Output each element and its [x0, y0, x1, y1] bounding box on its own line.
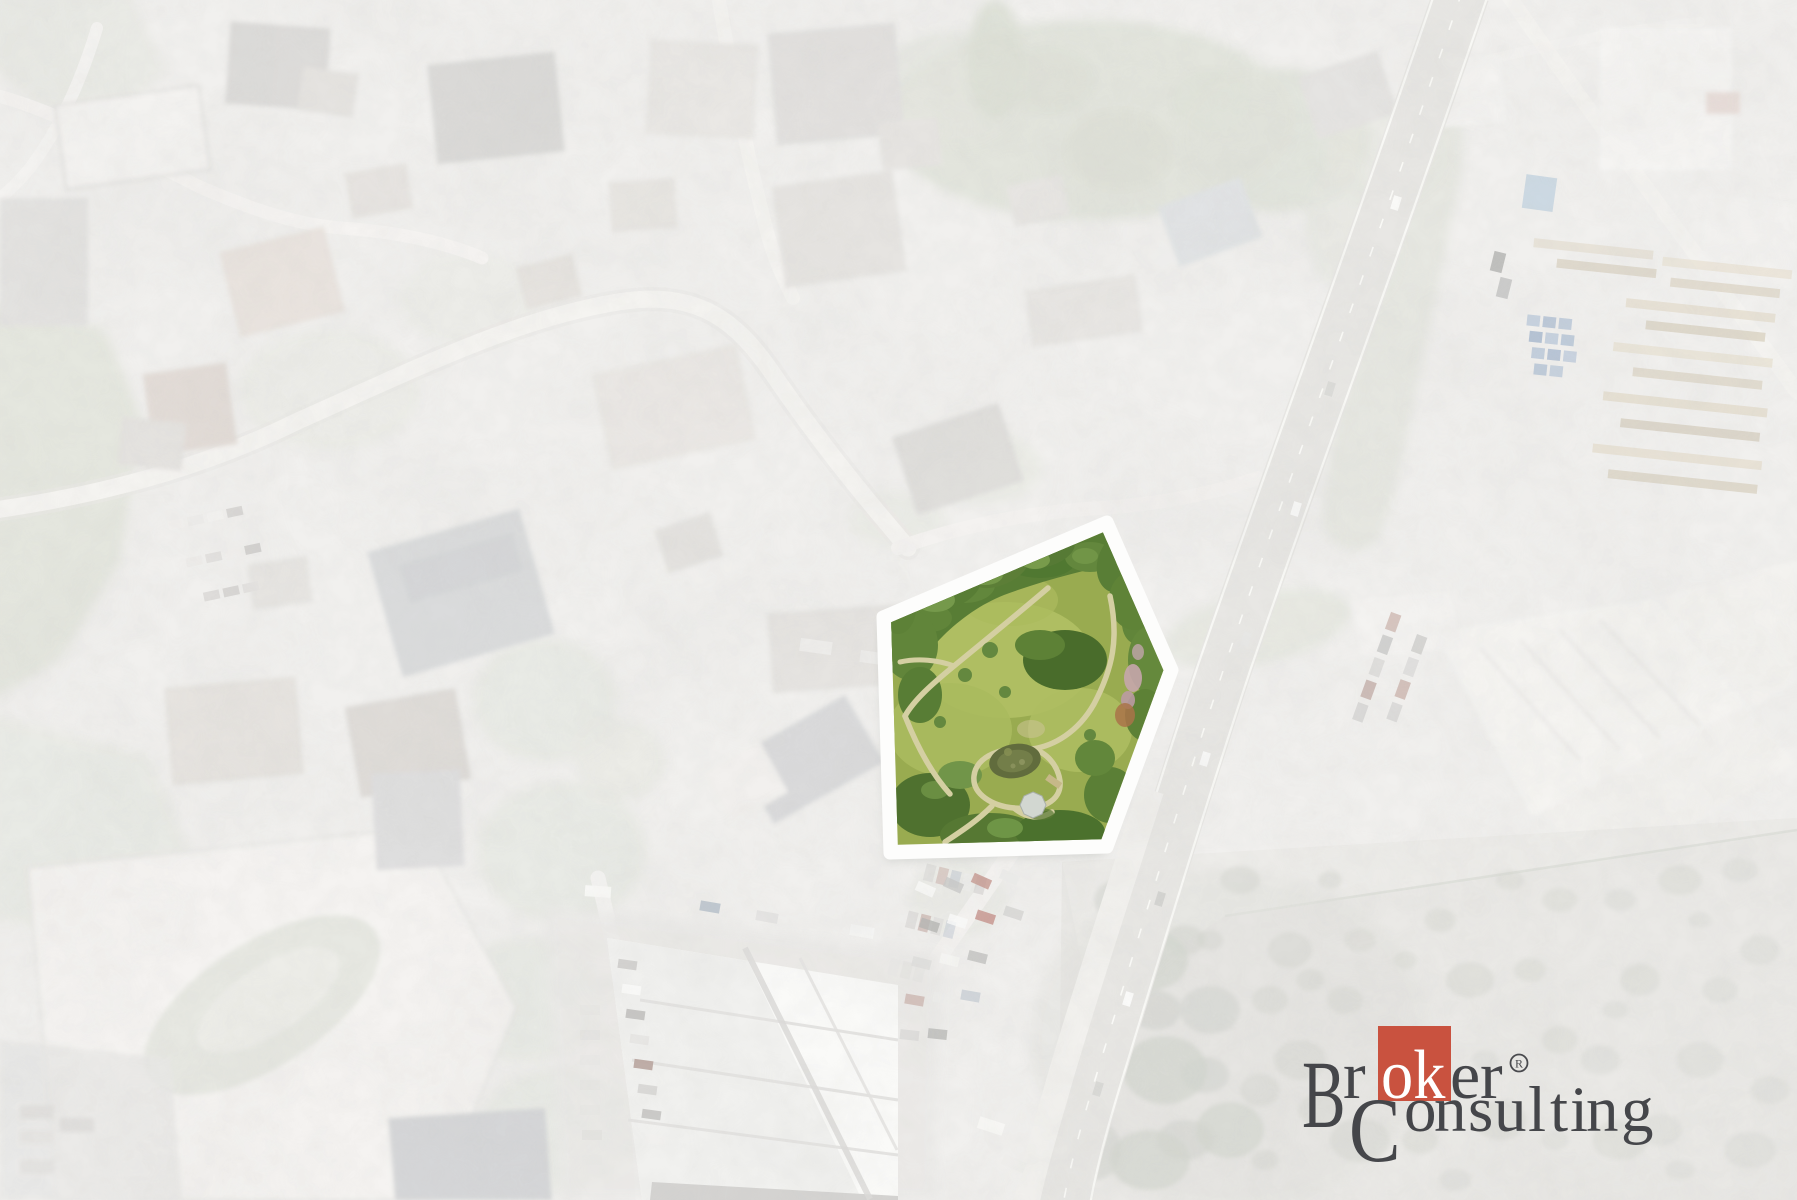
svg-text:R: R [1515, 1057, 1523, 1071]
svg-text:B: B [1302, 1042, 1346, 1148]
svg-text:onsulting: onsulting [1404, 1074, 1654, 1146]
svg-text:C: C [1349, 1080, 1401, 1182]
